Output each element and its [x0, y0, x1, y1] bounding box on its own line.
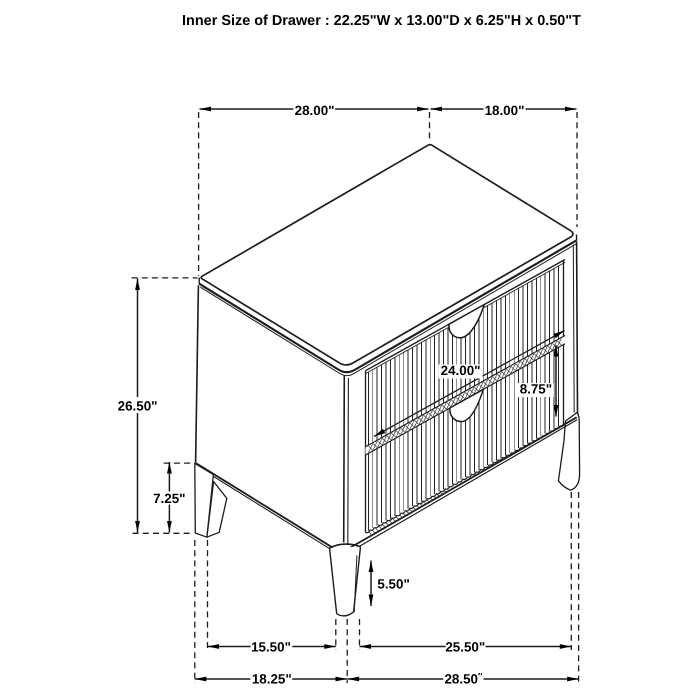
- svg-text:7.25": 7.25": [153, 491, 185, 506]
- svg-text:15.50": 15.50": [251, 640, 291, 655]
- svg-text:24.00": 24.00": [441, 363, 481, 378]
- svg-text:26.50": 26.50": [118, 398, 158, 413]
- svg-text:25.50": 25.50": [445, 640, 485, 655]
- svg-text:Inner Size of Drawer : 22.25"W: Inner Size of Drawer : 22.25"W x 13.00"D…: [182, 13, 581, 29]
- svg-text:18.25": 18.25": [252, 672, 292, 687]
- svg-text:18.00": 18.00": [485, 103, 525, 118]
- svg-text:5.50": 5.50": [377, 577, 409, 592]
- svg-text:28.00": 28.00": [295, 103, 335, 118]
- svg-text:8.75": 8.75": [520, 382, 552, 397]
- svg-text:28.50″: 28.50″: [444, 671, 483, 687]
